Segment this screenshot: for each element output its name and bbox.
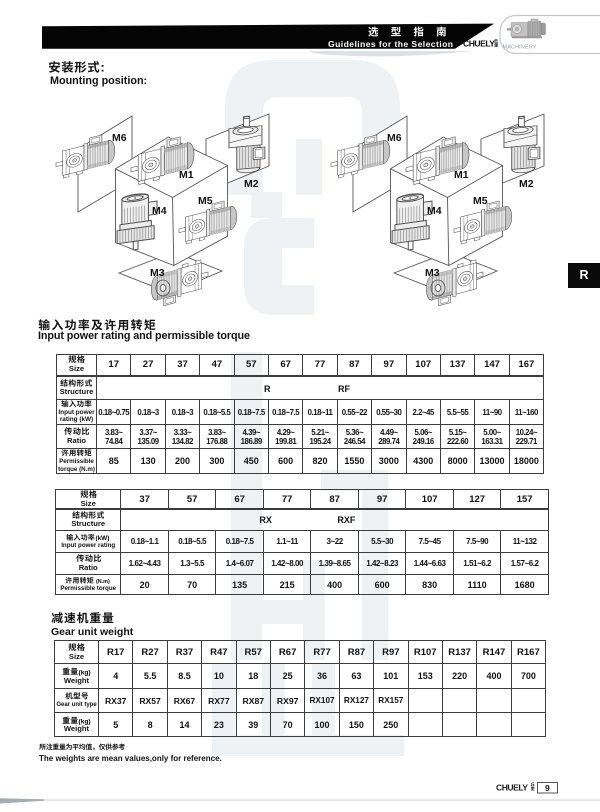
svg-text:(kW): (kW) bbox=[95, 535, 109, 542]
svg-text:(N.m): (N.m) bbox=[96, 579, 110, 585]
svg-text:MACHINERY: MACHINERY bbox=[503, 45, 537, 51]
svg-text:CHUELY: CHUELY bbox=[496, 783, 528, 793]
svg-text:Guidelines for the Selection: Guidelines for the Selection bbox=[328, 39, 453, 49]
svg-text:9: 9 bbox=[545, 783, 550, 793]
svg-text:CHUELY: CHUELY bbox=[463, 39, 495, 49]
svg-text::: : bbox=[101, 60, 105, 74]
